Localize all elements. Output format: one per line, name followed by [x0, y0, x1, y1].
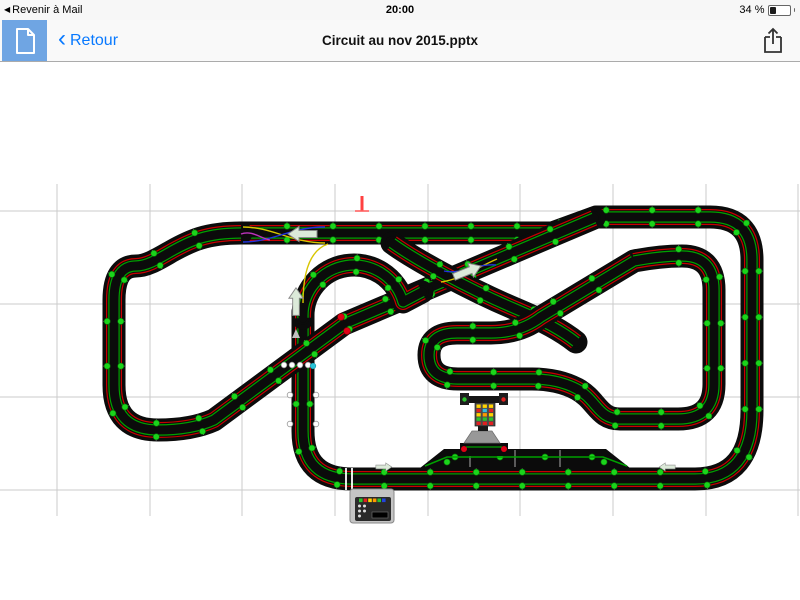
power-base-screen [372, 512, 388, 518]
status-battery: 34 % [739, 0, 795, 20]
power-base-unit [350, 489, 394, 523]
tower-lamp-right [501, 397, 505, 401]
white-marker-dot [313, 392, 319, 398]
white-marker-dot [297, 362, 303, 368]
status-time: 20:00 [0, 0, 800, 20]
battery-icon [768, 5, 791, 16]
white-marker-dot [281, 362, 287, 368]
white-marker-dot [305, 362, 311, 368]
document-app-icon [2, 20, 47, 61]
battery-percent-label: 34 % [739, 4, 764, 16]
tower-base [460, 443, 508, 456]
status-bar: ◀ Revenir à Mail 20:00 34 % [0, 0, 800, 20]
white-marker-dot [287, 392, 293, 398]
battery-nub-icon [794, 8, 796, 12]
tower-top-bar [463, 396, 505, 403]
document-title: Circuit au nov 2015.pptx [160, 20, 640, 61]
chevron-left-icon: ‹ [58, 20, 66, 58]
red-connector-dot [338, 314, 345, 321]
white-marker-dot [313, 421, 319, 427]
white-marker-dot [289, 362, 295, 368]
back-button-label: Retour [70, 32, 118, 50]
cyan-marker-dot [310, 363, 316, 369]
share-button[interactable] [760, 25, 792, 57]
back-button[interactable]: ‹ Retour [58, 20, 118, 61]
pit-straight [420, 449, 630, 468]
share-icon [760, 26, 786, 56]
toolbar: ‹ Retour Circuit au nov 2015.pptx [0, 20, 800, 62]
tower-pedestal [464, 431, 500, 443]
start-light-tower [460, 393, 508, 456]
document-icon [10, 25, 40, 57]
track-diagram [0, 62, 800, 600]
document-preview[interactable] [0, 62, 800, 600]
tower-lamp-left [462, 397, 466, 401]
white-marker-dot [287, 421, 293, 427]
red-connector-dot [344, 328, 351, 335]
screen: ◀ Revenir à Mail 20:00 34 % ‹ Retour Cir… [0, 0, 800, 600]
